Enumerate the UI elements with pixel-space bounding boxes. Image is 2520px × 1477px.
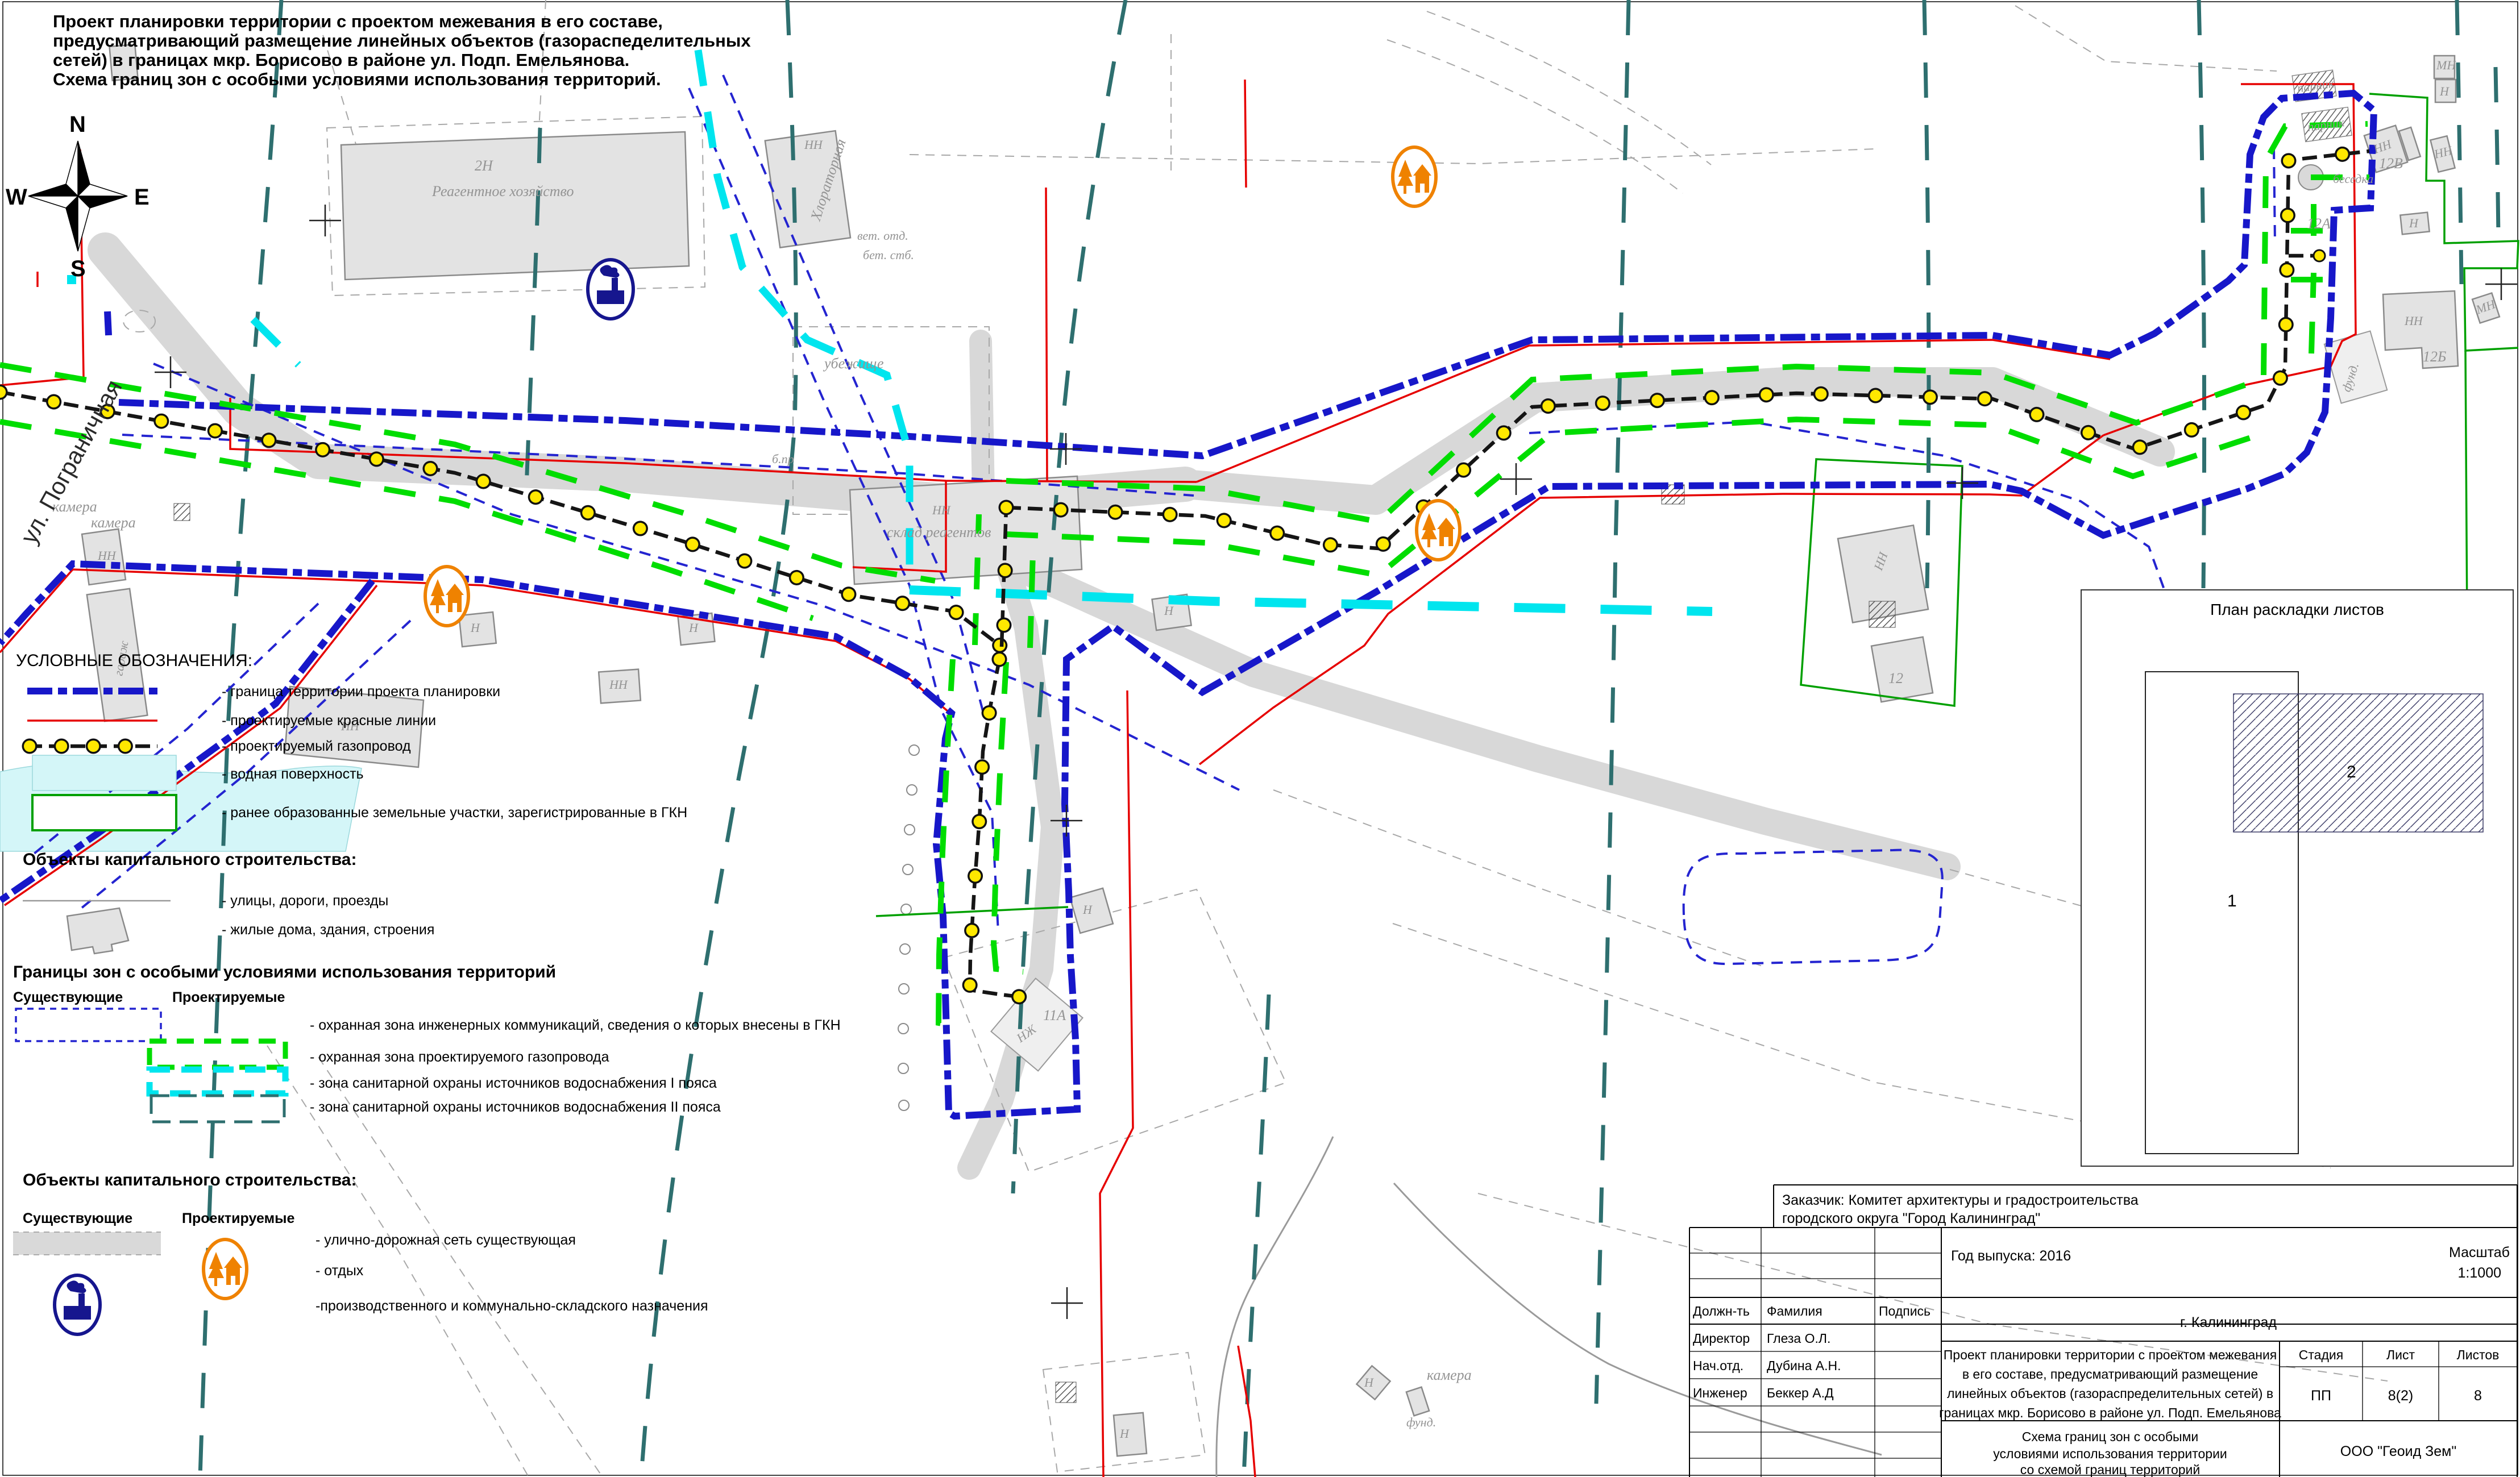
- tb-client-2: городского округа "Город Калининград": [1782, 1210, 2040, 1226]
- label-reagent: Реагентное хозяйство: [431, 183, 574, 199]
- tb-doc-line: со схемой границ территорий: [2020, 1462, 2200, 1477]
- legend-capital2-heading: Объекты капитального строительства:: [23, 1171, 356, 1189]
- legend-item: - проектируемые красные линии: [222, 713, 436, 729]
- legend-item: - улично-дорожная сеть существующая: [315, 1232, 576, 1248]
- compass-s: S: [70, 256, 86, 281]
- title-line: сетей) в границах мкр. Борисово в районе…: [53, 50, 629, 70]
- layout-sheet-2-label: 2: [2347, 763, 2356, 781]
- title-line: предусматривающий размещение линейных об…: [53, 31, 751, 51]
- label-nn: НН: [609, 677, 628, 692]
- label-vet: вет. отд.: [857, 228, 908, 243]
- legend-item: - водная поверхность: [222, 766, 364, 782]
- legend-item: -производственного и коммунально-складск…: [315, 1298, 708, 1314]
- label-n: Н: [1164, 604, 1174, 618]
- legend-item: - охранная зона инженерных коммуникаций,…: [310, 1017, 841, 1033]
- label-nn: НН: [804, 138, 823, 152]
- tb-row-position: Директор: [1693, 1331, 1750, 1346]
- label-n: Н: [688, 621, 699, 635]
- label-bet: бет. стб.: [863, 248, 914, 262]
- sheet-title: Проект планировки территории с проектом …: [53, 11, 751, 89]
- tb-col-name: Фамилия: [1767, 1304, 1822, 1318]
- label-n: Н: [2439, 84, 2450, 98]
- legend-sample-water: [32, 755, 176, 790]
- legend-sample-street-net: [13, 1232, 161, 1255]
- label-mn: МН: [2436, 58, 2456, 72]
- legend-col-projected: Проектируемые: [182, 1210, 294, 1226]
- tb-col-sign: Подпись: [1879, 1304, 1931, 1318]
- map-base: 2Н Реагентное хозяйство НН Хлораторная в…: [0, 0, 2518, 1477]
- industrial-icon: [588, 260, 633, 319]
- tb-scale-value: 1:1000: [2458, 1265, 2501, 1281]
- tb-row-name: Глеза О.Л.: [1767, 1331, 1830, 1346]
- label-nn: НН: [932, 503, 951, 517]
- tb-project-line: границах мкр. Борисово в районе ул. Подп…: [1939, 1405, 2281, 1420]
- label-n: Н: [2409, 216, 2419, 230]
- tb-sheet-label: Лист: [2386, 1347, 2415, 1362]
- legend-item: - отдых: [315, 1263, 364, 1279]
- tb-client-1: Заказчик: Комитет архитектуры и градостр…: [1782, 1192, 2139, 1208]
- tb-row-position: Инженер: [1693, 1386, 1747, 1400]
- label-sklad: склад реагентов: [887, 524, 991, 540]
- legend-item: - охранная зона проектируемого газопрово…: [310, 1049, 609, 1065]
- recreation-icon: [1417, 501, 1460, 560]
- label-fund: фунд.: [1406, 1415, 1436, 1429]
- label-n: Н: [470, 621, 480, 635]
- legend-item: - улицы, дороги, проезды: [222, 893, 388, 909]
- label-nn: НН: [97, 548, 117, 563]
- sheet-layout-plan: План раскладки листов 1 2: [2081, 590, 2513, 1166]
- label-12: 12: [1888, 670, 1903, 687]
- label-n: Н: [1082, 902, 1093, 917]
- legend-zones-heading: Границы зон с особыми условиями использо…: [13, 963, 556, 981]
- title-line: Проект планировки территории с проектом …: [53, 11, 663, 31]
- recreation-icon: [204, 1239, 247, 1299]
- legend-capital-heading: Объекты капитального строительства:: [23, 850, 356, 869]
- tb-doc-line: условиями использования территории: [1993, 1446, 2227, 1461]
- compass-w: W: [6, 185, 27, 210]
- tb-row-name: Беккер А.Д: [1767, 1386, 1834, 1400]
- map-canvas: 2Н Реагентное хозяйство НН Хлораторная в…: [0, 0, 2520, 1477]
- building-reagent: [341, 132, 689, 280]
- legend-col-projected: Проектируемые: [172, 989, 285, 1005]
- tb-row-position: Нач.отд.: [1693, 1358, 1743, 1373]
- tb-city: г. Калининград: [2180, 1314, 2277, 1330]
- layout-plan-title: План раскладки листов: [2210, 601, 2384, 618]
- tb-project-line: Проект планировки территории с проектом …: [1944, 1347, 2277, 1362]
- legend-item: - проектируемый газопровод: [222, 738, 411, 754]
- label-kamera: камера: [91, 514, 136, 531]
- layout-sheet-1-label: 1: [2227, 892, 2237, 910]
- legend-item: - жилые дома, здания, строения: [222, 922, 434, 938]
- tb-project-line: в его составе, предусматривающий размеще…: [1962, 1367, 2258, 1382]
- recreation-icon: [425, 567, 468, 626]
- legend-sample-parcel: [32, 795, 176, 830]
- tb-scale-label: Масштаб: [2449, 1245, 2510, 1260]
- industrial-icon: [55, 1275, 100, 1334]
- tb-company: ООО "Геоид Зем": [2340, 1443, 2456, 1459]
- tb-project-line: линейных объектов (газораспределительных…: [1947, 1386, 2273, 1401]
- label-2n: 2Н: [475, 157, 493, 174]
- title-line: Схема границ зон с особыми условиями исп…: [53, 69, 661, 89]
- tb-stage-label: Стадия: [2299, 1347, 2343, 1362]
- label-n: Н: [1119, 1426, 1130, 1441]
- recreation-icon: [1393, 147, 1436, 206]
- label-n: Н: [1364, 1375, 1374, 1389]
- tb-doc-line: Схема границ зон с особыми: [2022, 1429, 2199, 1444]
- tb-sheets: 8: [2474, 1388, 2482, 1404]
- tb-sheet: 8(2): [2388, 1388, 2413, 1404]
- compass-e: E: [134, 185, 150, 210]
- tb-stage: ПП: [2311, 1388, 2331, 1404]
- legend-item: - зона санитарной охраны источников водо…: [310, 1099, 721, 1115]
- layout-sheet-2: [2233, 694, 2483, 832]
- compass-n: N: [69, 112, 86, 137]
- label-11a: 11А: [1043, 1007, 1066, 1024]
- label-nn: НН: [2404, 314, 2423, 328]
- label-12a: 12А: [2307, 215, 2331, 232]
- label-shelter: убежище: [823, 355, 884, 372]
- label-bpr: б.пр: [772, 452, 794, 466]
- legend-item: - зона санитарной охраны источников водо…: [310, 1075, 717, 1091]
- label-kamera: камера: [1427, 1367, 1472, 1383]
- plan-scheme-page: 2Н Реагентное хозяйство НН Хлораторная в…: [0, 0, 2520, 1477]
- legend-col-existing: Существующие: [13, 989, 123, 1005]
- legend-col-existing: Существующие: [23, 1210, 132, 1226]
- tb-year: Год выпуска: 2016: [1951, 1248, 2071, 1264]
- legend-heading: УСЛОВНЫЕ ОБОЗНАЧЕНИЯ:: [16, 651, 252, 670]
- legend-item: - граница территории проекта планировки: [222, 684, 500, 700]
- tb-sheets-label: Листов: [2457, 1347, 2500, 1362]
- tb-row-name: Дубина А.Н.: [1767, 1358, 1841, 1373]
- label-besedka: беседка: [2333, 172, 2373, 186]
- tb-col-position: Должн-ть: [1693, 1304, 1750, 1318]
- label-12b: 12Б: [2423, 348, 2446, 365]
- legend-item: - ранее образованные земельные участки, …: [222, 805, 687, 821]
- label-12v: 12В: [2379, 155, 2403, 172]
